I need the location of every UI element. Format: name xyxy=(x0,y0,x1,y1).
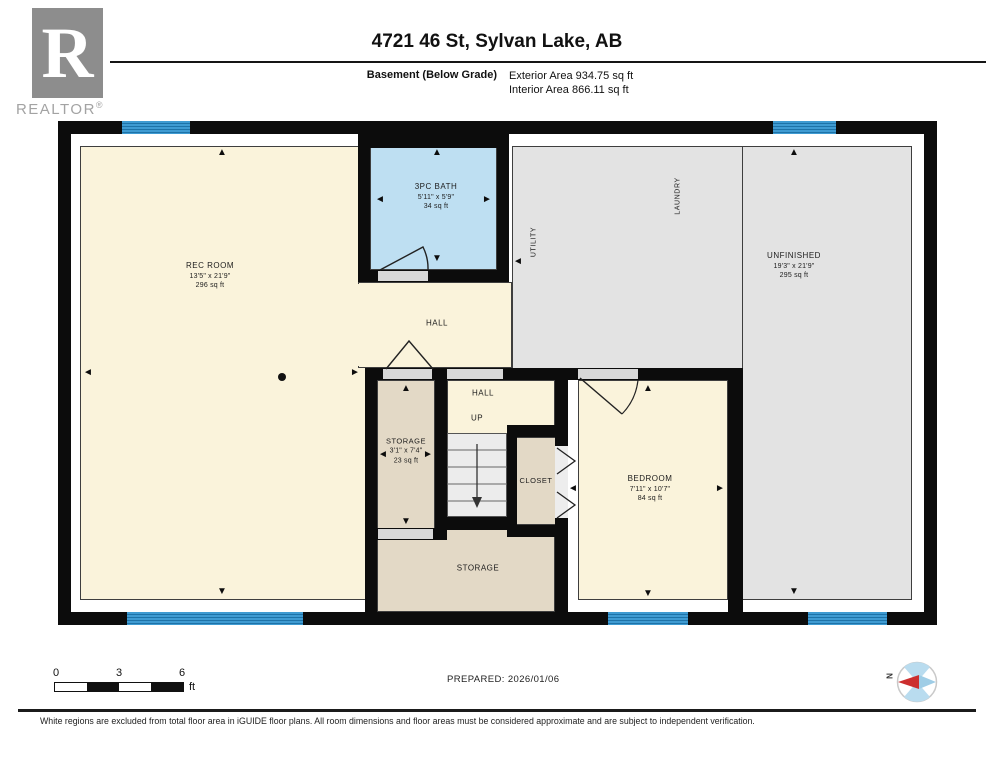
door-opening xyxy=(447,369,503,379)
wall xyxy=(555,537,568,612)
dimension-arrow-down-icon: ▼ xyxy=(643,589,653,599)
room-area: 34 sq ft xyxy=(415,202,458,211)
window xyxy=(773,121,836,134)
prepared-date: PREPARED: 2026/01/06 xyxy=(447,674,559,685)
door-opening xyxy=(378,271,428,281)
dimension-arrow-down-icon: ▼ xyxy=(432,254,442,264)
room-rec-room xyxy=(80,146,367,600)
dimension-arrow-left-icon: ◄ xyxy=(568,484,578,494)
room-name: CLOSET xyxy=(519,476,552,486)
compass-needle-north xyxy=(898,675,919,689)
room-name: UNFINISHED xyxy=(767,251,821,262)
room-label-hall-upper: HALL xyxy=(426,319,448,330)
room-name: HALL xyxy=(426,319,448,330)
dimension-arrow-up-icon: ▲ xyxy=(789,148,799,158)
scale-tick-0: 0 xyxy=(53,667,59,679)
room-name: STORAGE xyxy=(457,564,499,575)
dimension-arrow-up-icon: ▲ xyxy=(643,384,653,394)
room-label-utility: UTILITY xyxy=(529,227,538,257)
room-name: 3PC BATH xyxy=(415,182,458,193)
wall xyxy=(555,368,568,446)
room-dims: 13'5" x 21'9" xyxy=(186,272,234,281)
room-name: UTILITY xyxy=(529,227,538,257)
room-label-hall-lower: HALL xyxy=(472,389,494,400)
room-name: STORAGE xyxy=(386,437,426,447)
wall xyxy=(507,425,517,530)
wall xyxy=(497,134,509,282)
wall xyxy=(447,517,517,530)
wall xyxy=(435,380,447,530)
footer-divider xyxy=(18,709,976,712)
wall xyxy=(58,121,71,625)
dimension-arrow-up-icon: ▲ xyxy=(217,148,227,158)
compass-wedge xyxy=(904,662,930,682)
window xyxy=(127,612,303,625)
realtor-logo-icon: R xyxy=(32,8,103,98)
room-label-rec-room: REC ROOM 13'5" x 21'9" 296 sq ft xyxy=(186,261,234,291)
room-dims: 3'1" x 7'4" xyxy=(386,447,426,456)
room-dims: 19'3" x 21'9" xyxy=(767,262,821,271)
room-name: BEDROOM xyxy=(628,474,673,485)
wall xyxy=(728,368,743,612)
hall-seam-patch xyxy=(358,284,370,366)
room-label-storage-large: STORAGE xyxy=(457,564,499,575)
floor-label: Basement (Below Grade) xyxy=(0,69,497,81)
wall xyxy=(358,134,370,282)
room-area: 296 sq ft xyxy=(186,281,234,290)
wall xyxy=(365,368,377,612)
room-label-closet: CLOSET xyxy=(519,476,552,486)
title-divider xyxy=(110,61,986,63)
window xyxy=(122,121,190,134)
disclaimer-text: White regions are excluded from total fl… xyxy=(40,716,940,726)
room-label-bedroom: BEDROOM 7'11" x 10'7" 84 sq ft xyxy=(628,474,673,504)
area-summary: Exterior Area 934.75 sq ft Interior Area… xyxy=(509,69,633,97)
scale-unit-label: ft xyxy=(189,681,195,693)
dimension-arrow-right-icon: ► xyxy=(482,195,492,205)
scale-segment xyxy=(119,683,151,691)
stairs-up-text: UP xyxy=(471,414,483,425)
wall xyxy=(924,121,937,625)
scale-segment xyxy=(87,683,119,691)
floor-plan-page: R REALTOR® 4721 46 St, Sylvan Lake, AB B… xyxy=(0,0,994,768)
door-opening xyxy=(383,369,432,379)
realtor-logo-text: REALTOR xyxy=(16,101,96,118)
window xyxy=(608,612,688,625)
room-dims: 7'11" x 10'7" xyxy=(628,485,673,494)
room-area: 84 sq ft xyxy=(628,494,673,503)
room-area: 23 sq ft xyxy=(386,456,426,465)
room-label-bath: 3PC BATH 5'11" x 5'9" 34 sq ft xyxy=(415,182,458,212)
dimension-arrow-left-icon: ◄ xyxy=(378,450,388,460)
label-stairs-up: UP xyxy=(471,414,483,425)
realtor-logo-wordmark: REALTOR® xyxy=(2,100,118,118)
compass-icon xyxy=(893,658,941,706)
dimension-arrow-down-icon: ▼ xyxy=(401,517,411,527)
closet-bifold-opening xyxy=(555,446,568,518)
scale-segment xyxy=(151,683,183,691)
room-label-storage-small: STORAGE 3'1" x 7'4" 23 sq ft xyxy=(386,437,426,466)
room-dims: 5'11" x 5'9" xyxy=(415,193,458,202)
room-area: 295 sq ft xyxy=(767,271,821,280)
dimension-arrow-left-icon: ◄ xyxy=(513,257,523,267)
door-opening xyxy=(378,529,433,539)
dimension-arrow-right-icon: ► xyxy=(423,450,433,460)
room-label-laundry: LAUNDRY xyxy=(673,177,682,215)
scale-tick-3: 3 xyxy=(116,667,122,679)
compass-needle-south xyxy=(919,675,936,689)
door-opening xyxy=(578,369,638,379)
staircase xyxy=(447,433,507,517)
room-label-unfinished: UNFINISHED 19'3" x 21'9" 295 sq ft xyxy=(767,251,821,281)
page-title: 4721 46 St, Sylvan Lake, AB xyxy=(0,31,994,53)
interior-area: Interior Area 866.11 sq ft xyxy=(509,83,633,97)
room-name: REC ROOM xyxy=(186,261,234,272)
scale-bar xyxy=(54,682,184,692)
scale-segment xyxy=(55,683,87,691)
dimension-arrow-right-icon: ► xyxy=(350,368,360,378)
dimension-arrow-down-icon: ▼ xyxy=(217,587,227,597)
dimension-arrow-right-icon: ► xyxy=(715,484,725,494)
registered-mark: ® xyxy=(96,100,104,110)
wall xyxy=(555,518,568,538)
dimension-arrow-up-icon: ▲ xyxy=(432,148,442,158)
room-name: LAUNDRY xyxy=(673,177,682,215)
compass-north-label: N xyxy=(886,673,895,679)
dimension-arrow-up-icon: ▲ xyxy=(401,384,411,394)
window xyxy=(808,612,887,625)
dimension-arrow-left-icon: ◄ xyxy=(83,368,93,378)
exterior-area: Exterior Area 934.75 sq ft xyxy=(509,69,633,83)
dimension-arrow-down-icon: ▼ xyxy=(789,587,799,597)
room-name: HALL xyxy=(472,389,494,400)
scale-tick-6: 6 xyxy=(179,667,185,679)
compass-wedge xyxy=(904,682,930,702)
wall xyxy=(358,134,509,148)
dimension-arrow-left-icon: ◄ xyxy=(375,195,385,205)
